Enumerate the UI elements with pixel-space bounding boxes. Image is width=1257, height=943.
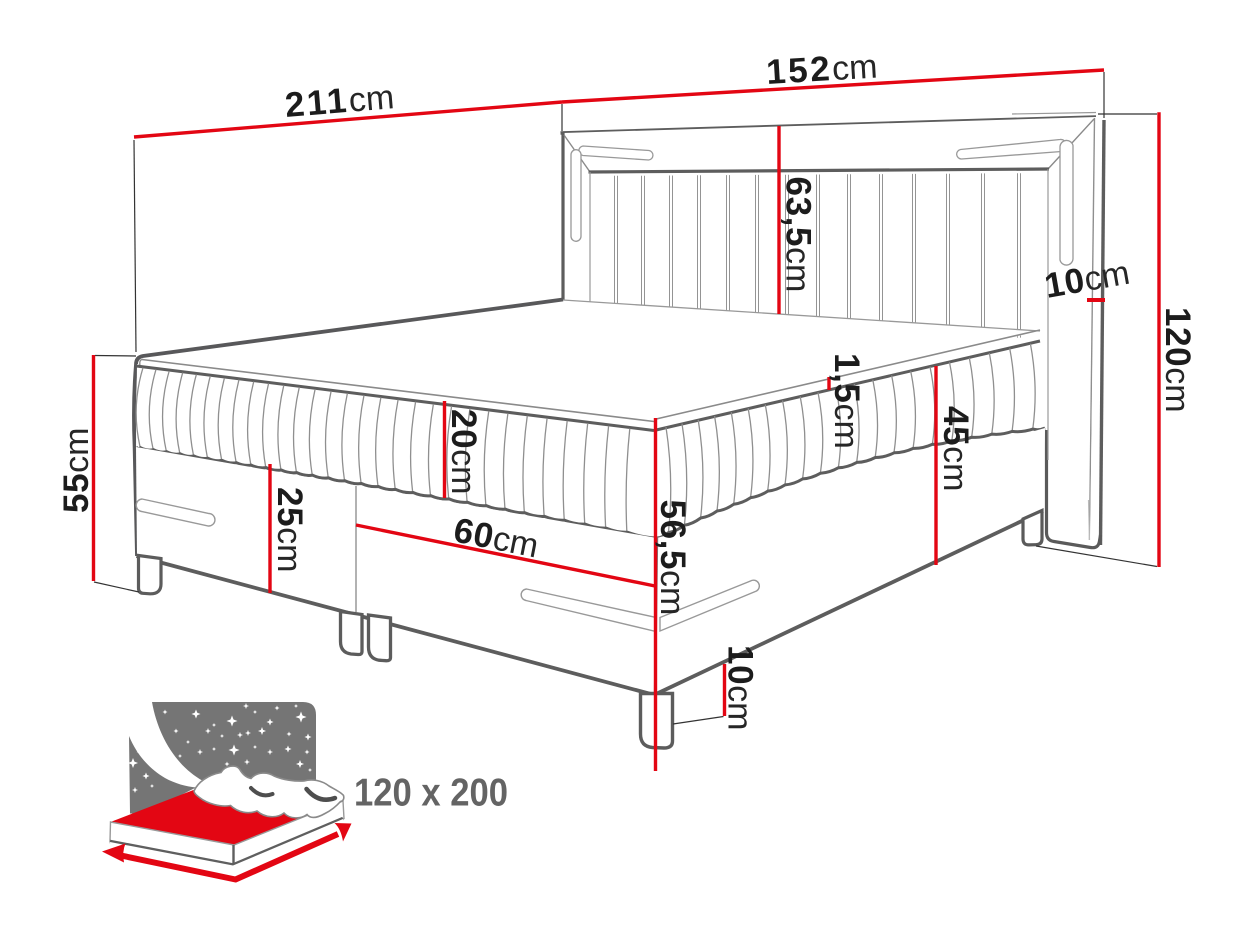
svg-text:152cm: 152cm: [765, 46, 878, 92]
svg-text:56,5cm: 56,5cm: [653, 500, 692, 616]
svg-text:20cm: 20cm: [444, 409, 483, 494]
svg-text:1,5cm: 1,5cm: [827, 353, 866, 449]
svg-text:25cm: 25cm: [270, 487, 309, 572]
svg-text:63,5cm: 63,5cm: [779, 177, 818, 293]
svg-text:55cm: 55cm: [57, 428, 96, 513]
svg-text:120 x 200: 120 x 200: [354, 772, 508, 815]
svg-text:45cm: 45cm: [936, 406, 975, 491]
svg-text:10cm: 10cm: [721, 645, 760, 730]
svg-text:120cm: 120cm: [1158, 307, 1197, 413]
